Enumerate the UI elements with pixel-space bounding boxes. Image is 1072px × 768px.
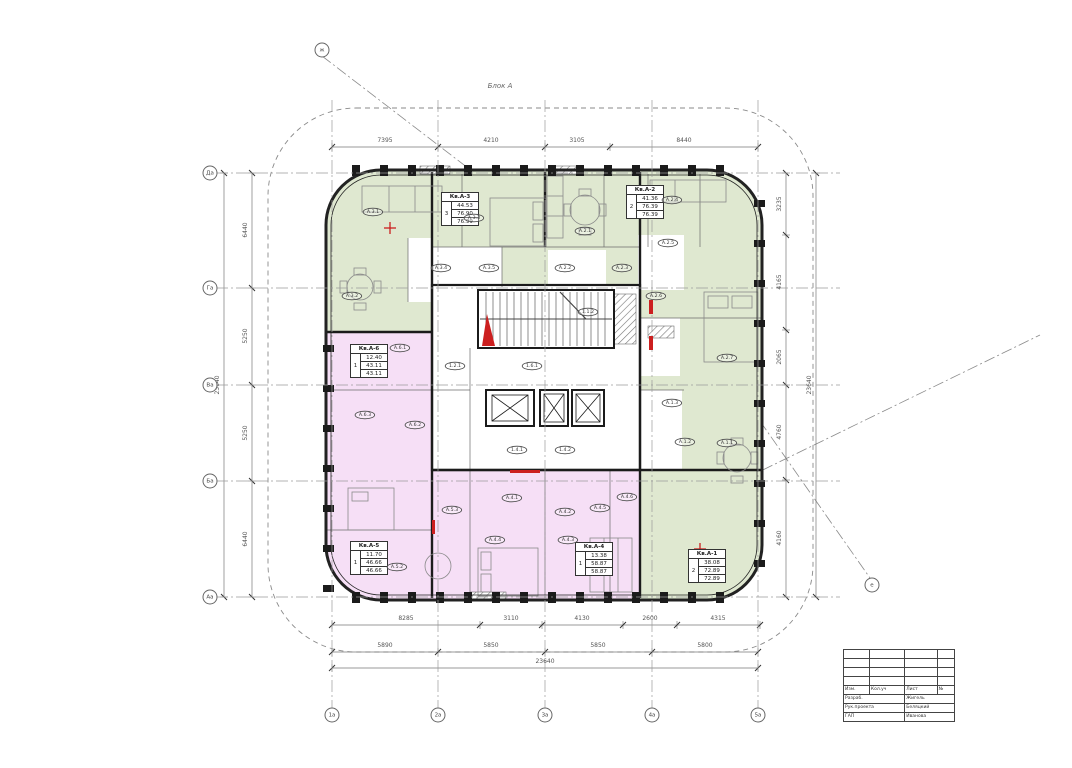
apartment-stamp: Кв.А-2241.3676.3976.39 — [626, 185, 664, 219]
room-label: А.3.3 — [464, 214, 485, 223]
dim-label: 3235 — [777, 196, 783, 211]
axis-bubble: 3а — [538, 708, 553, 723]
room-label: А.4.1 — [502, 494, 523, 503]
title-block-header-cell: Кол.уч — [869, 686, 904, 695]
dim-label: 4165 — [777, 274, 783, 289]
dim-label: 5800 — [697, 643, 712, 649]
dim-label: 2065 — [777, 349, 783, 364]
apartment-stamp: Кв.А-4113.3858.8758.87 — [575, 542, 613, 576]
apartment-stamp: Кв.А-1238.0872.8972.89 — [688, 549, 726, 583]
dim-label: 2600 — [642, 616, 657, 622]
title-block: Изм.Кол.учЛист№Разраб.ЖигельРук.проектаБ… — [843, 649, 955, 722]
title-block-header-cell: Изм. — [844, 686, 870, 695]
dim-label: 5850 — [483, 643, 498, 649]
room-label: А.3.5 — [479, 264, 500, 273]
room-label: А.2.7 — [717, 354, 738, 363]
dim-label: 5890 — [377, 643, 392, 649]
title-block-header-cell: Лист — [905, 686, 937, 695]
room-label: 1.6.1 — [522, 362, 542, 371]
room-label: 1.4.2 — [555, 446, 575, 455]
dim-label: 7395 — [377, 138, 392, 144]
axis-bubble: 1а — [325, 708, 340, 723]
axis-bubble: 5а — [751, 708, 766, 723]
axis-bubble: Ба — [203, 474, 218, 489]
room-label: А.3.1 — [363, 208, 384, 217]
dim-label: 5250 — [243, 425, 249, 440]
room-label: А.3.2 — [342, 292, 363, 301]
apartment-stamp: Кв.А-6112.4043.1143.11 — [350, 344, 388, 378]
floor-plan-sheet: Блок А 739542103105844082853110413026004… — [0, 0, 1072, 768]
room-label: 1.4.1 — [507, 446, 527, 455]
room-label: А.3.4 — [431, 264, 452, 273]
room-label: А.4.4 — [485, 536, 506, 545]
dim-label: 3105 — [569, 138, 584, 144]
dim-label: 6440 — [243, 531, 249, 546]
axis-bubble: Да — [203, 166, 218, 181]
apartment-stamp: Кв.А-5111.7046.6646.66 — [350, 541, 388, 575]
axis-bubble: Ва — [203, 378, 218, 393]
dim-label: 4210 — [483, 138, 498, 144]
room-label: А.6.3 — [355, 411, 376, 420]
axis-bubble: Аа — [203, 590, 218, 605]
axis-bubble: 4а — [645, 708, 660, 723]
room-label: А.4.5 — [590, 504, 611, 513]
room-label: 1.1.2 — [578, 308, 598, 317]
staircase — [478, 290, 614, 348]
room-label: А.1.1 — [717, 439, 738, 448]
dim-label: 8285 — [398, 616, 413, 622]
axis-bubble: 2а — [431, 708, 446, 723]
dim-label: 4315 — [710, 616, 725, 622]
dim-label: 4760 — [777, 424, 783, 439]
dim-label: 5850 — [590, 643, 605, 649]
dim-label: 23640 — [807, 375, 813, 394]
room-label: А.5.3 — [442, 506, 463, 515]
axis-bubble: Га — [203, 281, 218, 296]
room-label: А.2.1 — [575, 227, 596, 236]
dim-label: 5250 — [243, 328, 249, 343]
room-label: А.2.6 — [646, 292, 667, 301]
room-label: А.5.2 — [387, 563, 408, 572]
dim-label: 4160 — [777, 530, 783, 545]
block-caption: Блок А — [488, 82, 513, 90]
room-label: А.2.4 — [662, 196, 683, 205]
dim-label: 6440 — [243, 222, 249, 237]
title-block-header-cell: № — [937, 686, 954, 695]
room-label: А.4.3 — [558, 536, 579, 545]
room-label: А.1.3 — [662, 399, 683, 408]
room-label: А.4.6 — [617, 493, 638, 502]
axis-bubble: е — [865, 578, 880, 593]
axis-bubble: ж — [315, 43, 330, 58]
dim-label: 23640 — [535, 659, 554, 665]
room-label: А.6.1 — [390, 344, 411, 353]
dim-label: 8440 — [676, 138, 691, 144]
dim-label: 4130 — [574, 616, 589, 622]
room-label: А.1.2 — [675, 438, 696, 447]
room-label: А.4.2 — [555, 508, 576, 517]
room-label: А.2.5 — [658, 239, 679, 248]
room-label: А.2.3 — [612, 264, 633, 273]
room-label: 1.2.1 — [445, 362, 465, 371]
room-label: А.6.2 — [405, 421, 426, 430]
dim-label: 3110 — [503, 616, 518, 622]
room-label: А.2.2 — [555, 264, 576, 273]
